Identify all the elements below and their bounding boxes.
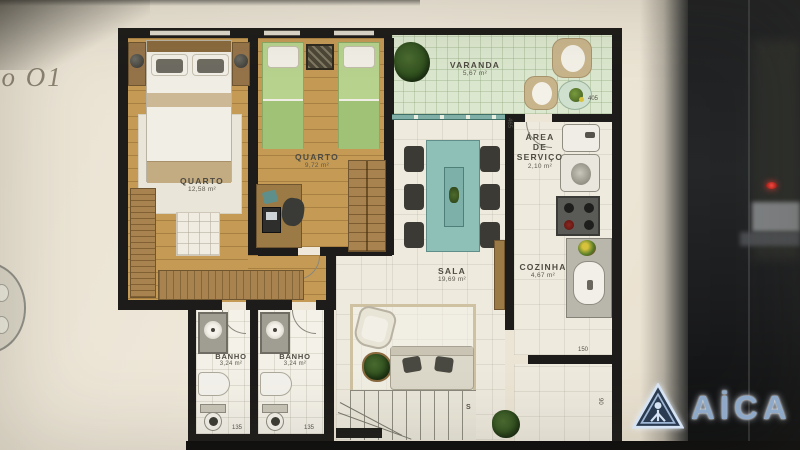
wall [324,310,334,434]
pouf [176,212,220,256]
desk-item [262,189,278,204]
banho1-area: 3,24 m² [212,361,250,369]
wall [246,300,292,310]
washer-door [571,163,591,185]
window [334,30,374,36]
wall [528,355,622,364]
chair-cushion [532,82,552,105]
banho2-area: 3,24 m² [276,361,314,369]
wall [612,28,622,442]
tank-faucet [585,132,595,138]
banho1-name: BANHO [212,352,250,361]
bed-blanket [339,99,379,149]
photo-bottom-edge [186,441,800,450]
servico-label: ÁREA DE SERVIÇO 2,10 m² [516,132,564,171]
dining-chair [404,184,424,210]
servico-name-l1: ÁREA [516,132,564,142]
toilet-seat [271,417,280,426]
bedside-lamp [130,54,144,68]
servico-name-l3: SERVIÇO [516,152,564,162]
sofa-cushion [402,356,422,374]
sink-faucet [587,280,593,290]
wall [316,300,336,310]
kitchen-counter [566,238,612,318]
cozinha-name: COZINHA [516,262,570,272]
varanda-area: 5,67 m² [440,70,510,78]
quarto2-area: 9,72 m² [284,162,350,170]
dim-90: 90 [597,398,603,416]
varanda-label: VARANDA 5,67 m² [440,60,510,79]
quarto2-name: QUARTO [284,152,350,162]
plant [492,410,520,438]
photo-of-floorplan: po O1 [0,0,800,450]
plan-caption-text: po O1 [0,62,63,93]
dim-150: 150 [578,347,588,353]
wardrobe-shelves [348,160,386,252]
plant [362,352,392,382]
patterned-rug [306,44,334,70]
bed-headboard [147,41,231,52]
dining-chair [480,146,500,172]
wall [118,38,128,310]
servico-area: 2,10 m² [516,163,564,171]
servico-name-l2: DE [516,142,564,152]
dining-chair [480,184,500,210]
cozinha-area: 4,67 m² [516,272,570,280]
desk-object [752,202,800,232]
laundry-tank [562,124,600,152]
quarto1-area: 12,58 m² [160,186,244,194]
wall [392,28,622,35]
bed-blanket-band [147,93,231,107]
aica-logo-text: AİCA [691,389,792,427]
bathroom-sink [198,372,230,396]
sala-area: 19,69 m² [426,276,478,284]
wall [188,310,196,434]
power-led [766,182,777,189]
fruit-bowl [578,240,596,256]
bathroom-sink [260,372,292,396]
banho2-name: BANHO [276,352,314,361]
bed-pillow-dark [156,59,183,73]
dim-405: 405 [588,96,598,102]
round-table [558,80,592,110]
desk-object [740,232,800,246]
wall [258,247,298,256]
photo-shadow-top [0,0,420,6]
aica-triangle-icon [632,383,684,434]
quarto2-label: QUARTO 9,72 m² [284,152,350,171]
bed-pillow [343,46,375,68]
sideboard [494,240,505,310]
shower [198,312,228,354]
bed-pillow-dark [197,59,224,73]
toilet-seat [209,417,218,426]
plant [394,42,430,82]
sofa-cushion [434,356,454,373]
wicker-chair [524,76,558,110]
dim-465: 465 [506,118,512,144]
wardrobe-long [158,270,304,300]
dim-135-banho2: 135 [304,425,314,431]
burner [584,203,594,213]
burner [564,203,574,213]
dining-chair [404,146,424,172]
sala-label: SALA 19,69 m² [426,266,478,285]
bed-blanket [263,99,303,149]
stove-cooktop [556,196,600,236]
burner [584,220,594,230]
kitchen-sink [573,261,605,305]
chair-cushion [561,45,585,72]
table-plant-flower [579,97,584,102]
dim-135-banho1: 135 [232,425,242,431]
armchair-seat [360,314,389,343]
single-bed [338,42,380,148]
wardrobe [130,188,156,298]
wall [336,428,382,438]
shower-drain [273,328,277,332]
burner-red [564,220,574,230]
wall [505,118,514,330]
banho1-label: BANHO 3,24 m² [212,352,250,369]
wall [118,300,222,310]
sala-name: SALA [426,266,478,276]
table-centerpiece [449,187,459,203]
single-bed [262,42,304,148]
sofa [390,346,474,390]
sofa-back [391,347,473,356]
double-bed [146,40,232,182]
wicker-chair [552,38,592,78]
varanda-name: VARANDA [440,60,510,70]
banho2-label: BANHO 3,24 m² [276,352,314,369]
bed-pillow [267,46,299,68]
quarto1-name: QUARTO [160,176,244,186]
dining-chair [404,222,424,248]
stairs-label: S [466,404,471,411]
dining-table [426,140,480,252]
washing-machine [560,154,600,192]
aica-watermark: AİCA [632,374,800,442]
quarto1-label: QUARTO 12,58 m² [160,176,244,195]
cozinha-label: COZINHA 4,67 m² [516,262,570,281]
wall [250,310,258,434]
toilet [200,404,226,432]
shower [260,312,290,354]
bedside-lamp [234,54,248,68]
siteplan-fragment [0,262,26,354]
window [150,30,230,36]
sliding-door [392,114,505,120]
laptop-screen [266,212,277,220]
shower-drain [211,328,215,332]
laptop [262,207,281,233]
toilet [262,404,288,432]
window [264,30,300,36]
